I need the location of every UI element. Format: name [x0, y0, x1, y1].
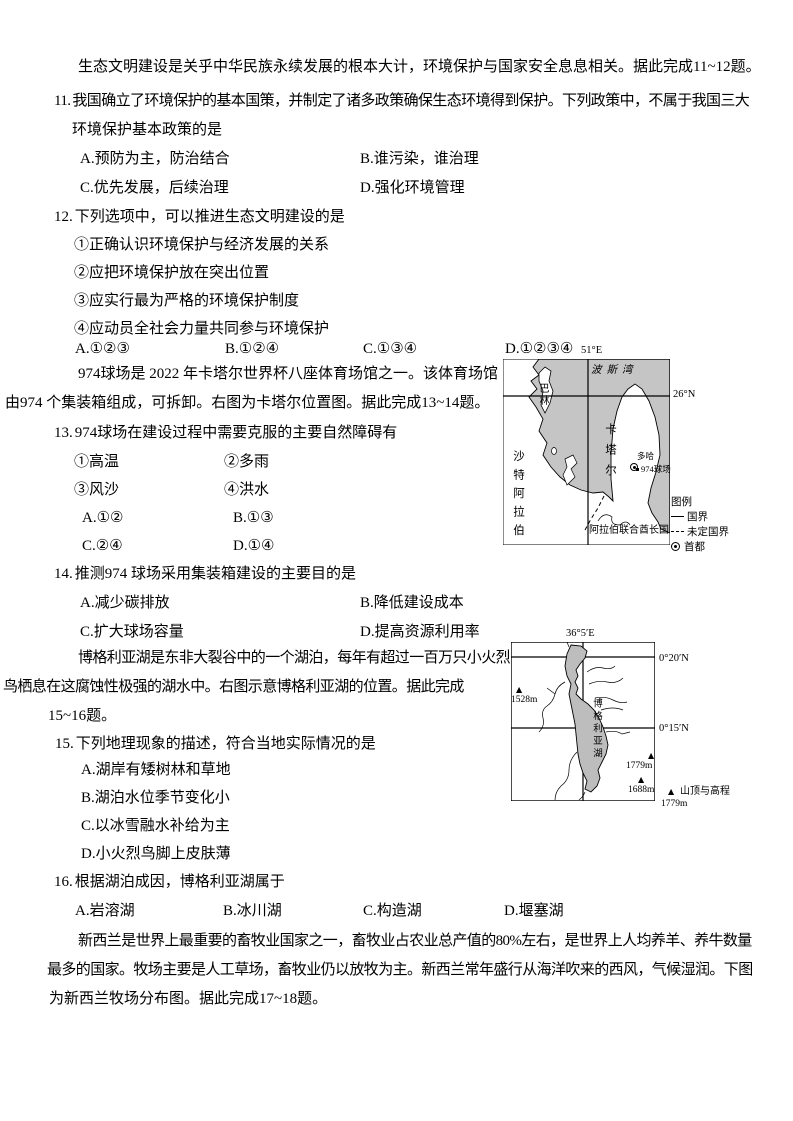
- doha-label: 多哈: [637, 450, 654, 462]
- q13-item-3: ③风沙: [74, 480, 119, 500]
- legend-row-undetermined: 未定国界: [671, 524, 729, 539]
- lake-bogoria-label: 博格利亚湖: [590, 698, 602, 761]
- q11-number: 11.: [54, 93, 70, 109]
- legend-row-border: 国界: [671, 509, 729, 524]
- q15-option-b: B.湖泊水位季节变化小: [81, 788, 230, 808]
- q11-option-c: C.优先发展，后续治理: [80, 178, 229, 198]
- q14-option-a: A.减少碳排放: [80, 593, 170, 613]
- qatar-map-legend: 图例 国界 未定国界 首都: [671, 497, 729, 554]
- legend-undetermined-label: 未定国界: [687, 524, 729, 539]
- bogoria-intro-line2: 鸟栖息在这腐蚀性极强的湖水中。右图示意博格利亚湖的位置。据此完成: [3, 677, 464, 697]
- q13-option-c: C.②④: [82, 536, 123, 556]
- q16-number: 16.: [54, 874, 73, 890]
- legend-row-capital: 首都: [671, 539, 729, 554]
- nz-intro-line1: 新西兰是世界上最重要的畜牧业国家之一，畜牧业占农业总产值的80%左右，是世界上人…: [78, 931, 752, 951]
- q14-option-c: C.扩大球场容量: [80, 622, 184, 642]
- q11-text: 我国确立了环境保护的基本国策，并制定了诸多政策确保生态环境得到保护。下列政策中，…: [72, 93, 749, 109]
- q12-item-4: ④应动员全社会力量共同参与环境保护: [74, 319, 329, 339]
- q14-option-d: D.提高资源利用率: [360, 622, 480, 642]
- q15-option-d: D.小火烈鸟脚上皮肤薄: [81, 844, 231, 864]
- question-11-line2: 环境保护基本政策的是: [72, 120, 222, 140]
- uae-label: 阿拉伯联合酋长国: [589, 525, 669, 537]
- q14-option-b: B.降低建设成本: [360, 593, 464, 613]
- bahrain-label: 巴林: [536, 383, 548, 407]
- q12-option-a: A.①②③: [75, 339, 130, 359]
- eco-intro: 生态文明建设是关乎中华民族永续发展的根本大计，环境保护与国家安全息息相关。据此完…: [78, 57, 761, 77]
- q11-option-a: A.预防为主，防治结合: [80, 149, 230, 169]
- peak-icon-1688: ▲: [638, 776, 644, 784]
- q12-item-3: ③应实行最为严格的环境保护制度: [74, 291, 299, 311]
- q12-item-2: ②应把环境保护放在突出位置: [74, 263, 269, 283]
- q15-option-c: C.以冰雪融水补给为主: [81, 816, 230, 836]
- q12-option-c: C.①③④: [363, 339, 417, 359]
- q12-option-b: B.①②④: [225, 339, 279, 359]
- persian-gulf-label: 波斯湾: [591, 365, 638, 377]
- question-16-stem: 16.根据湖泊成因，博格利亚湖属于: [54, 872, 285, 892]
- stadium-974-label: 974球场: [641, 463, 671, 475]
- small-island-1: [552, 448, 557, 455]
- peak-label-1779: 1779m: [626, 761, 652, 772]
- nz-intro-line2: 最多的国家。牧场主要是人工草场，畜牧业仍以放牧为主。新西兰常年盛行从海洋吹来的西…: [47, 960, 753, 980]
- question-13-stem: 13.974球场在建设过程中需要克服的主要自然障碍有: [54, 423, 397, 443]
- legend-capital-label: 首都: [684, 539, 705, 554]
- qatar-location-map: 51°E 26°N 波斯湾 巴林 卡塔尔 沙特阿拉伯 阿拉伯联合酋长国 多哈 9…: [503, 345, 793, 560]
- q13-number: 13.: [54, 425, 73, 441]
- q13-text: 974球场在建设过程中需要克服的主要自然障碍有: [75, 425, 398, 441]
- q13-item-4: ④洪水: [224, 480, 269, 500]
- qatar-latitude-label: 26°N: [673, 389, 695, 401]
- capital-icon: [671, 542, 680, 551]
- legend-title: 图例: [671, 497, 729, 509]
- q16-option-b: B.冰川湖: [223, 901, 282, 921]
- peak-icon-1528: ▲: [516, 686, 522, 694]
- qatar-label: 卡塔尔: [604, 423, 616, 485]
- q15-text: 下列地理现象的描述，符合当地实际情况的是: [76, 736, 376, 752]
- legend-peak-icon: ▲: [668, 788, 674, 796]
- question-12-stem: 12.下列选项中，可以推进生态文明建设的是: [54, 207, 345, 227]
- q13-option-d: D.①④: [233, 536, 274, 556]
- bogoria-lat-015-label: 0°15′N: [659, 723, 689, 735]
- peak-label-1528: 1528m: [511, 695, 537, 706]
- q13-option-b: B.①③: [233, 508, 274, 528]
- bogoria-longitude-label: 36°5′E: [566, 628, 595, 640]
- bogoria-map-svg: [511, 642, 655, 801]
- q15-option-a: A.湖岸有矮树林和草地: [81, 760, 231, 780]
- saudi-arabia-label: 沙特阿拉伯: [512, 450, 524, 543]
- qatar-intro-line1: 974球场是 2022 年卡塔尔世界杯八座体育场馆之一。该体育场馆: [78, 364, 498, 384]
- q14-text: 推测974 球场采用集装箱建设的主要目的是: [75, 566, 356, 582]
- solid-border-icon: [671, 516, 684, 517]
- qatar-longitude-label: 51°E: [581, 345, 602, 357]
- q12-text: 下列选项中，可以推进生态文明建设的是: [75, 209, 345, 225]
- q13-item-2: ②多雨: [224, 452, 269, 472]
- qatar-intro-line2: 由974 个集装箱组成，可拆卸。右图为卡塔尔位置图。据此完成13~14题。: [5, 393, 489, 413]
- exam-page: { "page": {"background": "#ffffff", "tex…: [0, 0, 793, 1121]
- dashed-border-icon: [671, 531, 684, 532]
- question-11-line1: 11.我国确立了环境保护的基本国策，并制定了诸多政策确保生态环境得到保护。下列政…: [54, 91, 749, 111]
- q16-option-c: C.构造湖: [363, 901, 422, 921]
- q16-option-d: D.堰塞湖: [504, 901, 564, 921]
- legend-border-label: 国界: [687, 509, 708, 524]
- q12-item-1: ①正确认识环境保护与经济发展的关系: [74, 235, 329, 255]
- legend-peak-value: 1779m: [661, 799, 687, 810]
- bogoria-lat-020-label: 0°20′N: [659, 653, 689, 665]
- q15-number: 15.: [55, 736, 74, 752]
- q16-option-a: A.岩溶湖: [75, 901, 135, 921]
- bogoria-intro-line1: 博格利亚湖是东非大裂谷中的一个湖泊，每年有超过一百万只小火烈: [78, 648, 510, 668]
- peak-icon-1779: ▲: [648, 752, 654, 760]
- question-15-stem: 15.下列地理现象的描述，符合当地实际情况的是: [55, 734, 376, 754]
- q16-text: 根据湖泊成因，博格利亚湖属于: [75, 874, 285, 890]
- q11-option-b: B.谁污染，谁治理: [360, 149, 479, 169]
- bogoria-location-map: 36°5′E 0°20′N 0°15′N 博格利亚湖 ▲ 1528m ▲ 177…: [506, 626, 793, 818]
- bogoria-intro-line3: 15~16题。: [48, 706, 116, 726]
- nz-intro-line3: 为新西兰牧场分布图。据此完成17~18题。: [49, 989, 327, 1009]
- q12-number: 12.: [54, 209, 73, 225]
- legend-peak-label: 山顶与高程: [680, 786, 730, 798]
- q14-number: 14.: [54, 566, 73, 582]
- question-14-stem: 14.推测974 球场采用集装箱建设的主要目的是: [54, 564, 356, 584]
- q13-option-a: A.①②: [82, 508, 123, 528]
- q11-option-d: D.强化环境管理: [360, 178, 465, 198]
- peak-label-1688: 1688m: [628, 785, 654, 796]
- stadium-974-icon: [636, 468, 639, 471]
- q13-item-1: ①高温: [74, 452, 119, 472]
